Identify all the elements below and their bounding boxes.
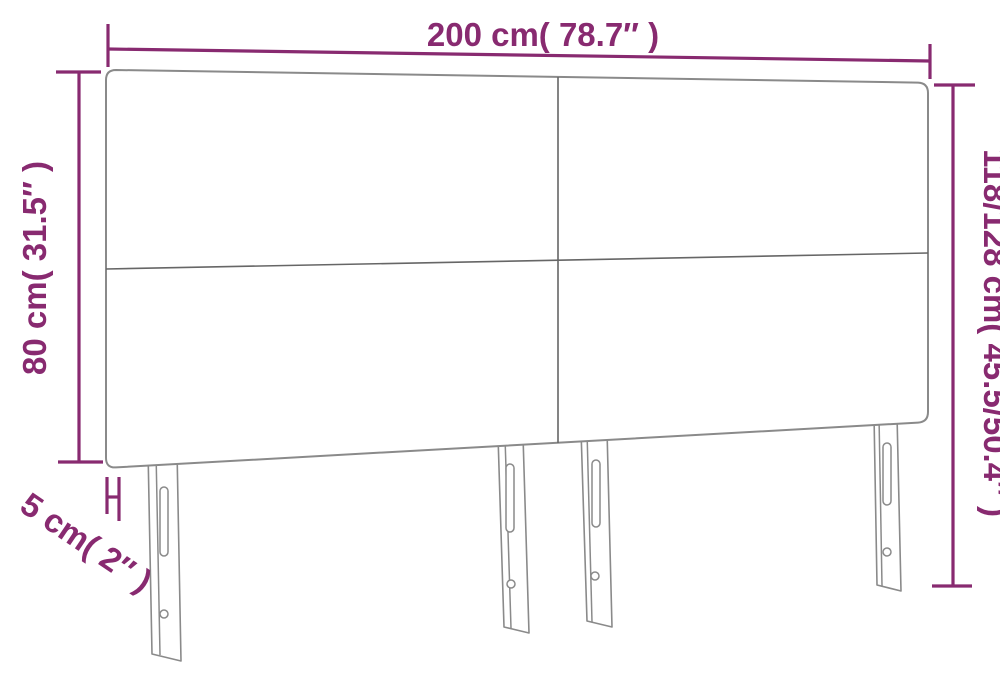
dimension-width: 200 cm( 78.7″ ) bbox=[108, 16, 930, 79]
leg-1-screw-hole bbox=[160, 610, 168, 618]
leg-2-slot bbox=[506, 464, 514, 532]
width-label: 200 cm( 78.7″ ) bbox=[427, 16, 659, 53]
leg-2 bbox=[498, 436, 529, 633]
thickness-label: 5 cm( 2″ ) bbox=[14, 485, 159, 599]
panel-height-label: 80 cm( 31.5″ ) bbox=[16, 161, 53, 375]
leg-4-slot bbox=[883, 443, 891, 505]
total-height-label: 118/128 cm( 45.5/50.4″ ) bbox=[977, 149, 1000, 517]
dimension-panel-height: 80 cm( 31.5″ ) bbox=[16, 72, 103, 462]
leg-4 bbox=[874, 415, 901, 591]
leg-1-slot bbox=[160, 487, 168, 556]
diagram-canvas: 200 cm( 78.7″ ) 80 cm( 31.5″ ) 118/128 c… bbox=[0, 0, 1000, 680]
leg-1 bbox=[148, 450, 181, 661]
headboard-outline bbox=[106, 70, 928, 467]
leg-4-screw-hole bbox=[883, 548, 891, 556]
leg-3-slot bbox=[592, 460, 600, 527]
leg-3 bbox=[581, 430, 612, 627]
headboard-dimension-diagram: 200 cm( 78.7″ ) 80 cm( 31.5″ ) 118/128 c… bbox=[0, 0, 1000, 680]
headboard bbox=[106, 70, 928, 467]
dimension-thickness: 5 cm( 2″ ) bbox=[14, 477, 159, 600]
leg-3-screw-hole bbox=[591, 572, 599, 580]
leg-2-screw-hole bbox=[507, 580, 515, 588]
dimension-total-height: 118/128 cm( 45.5/50.4″ ) bbox=[932, 85, 1000, 586]
